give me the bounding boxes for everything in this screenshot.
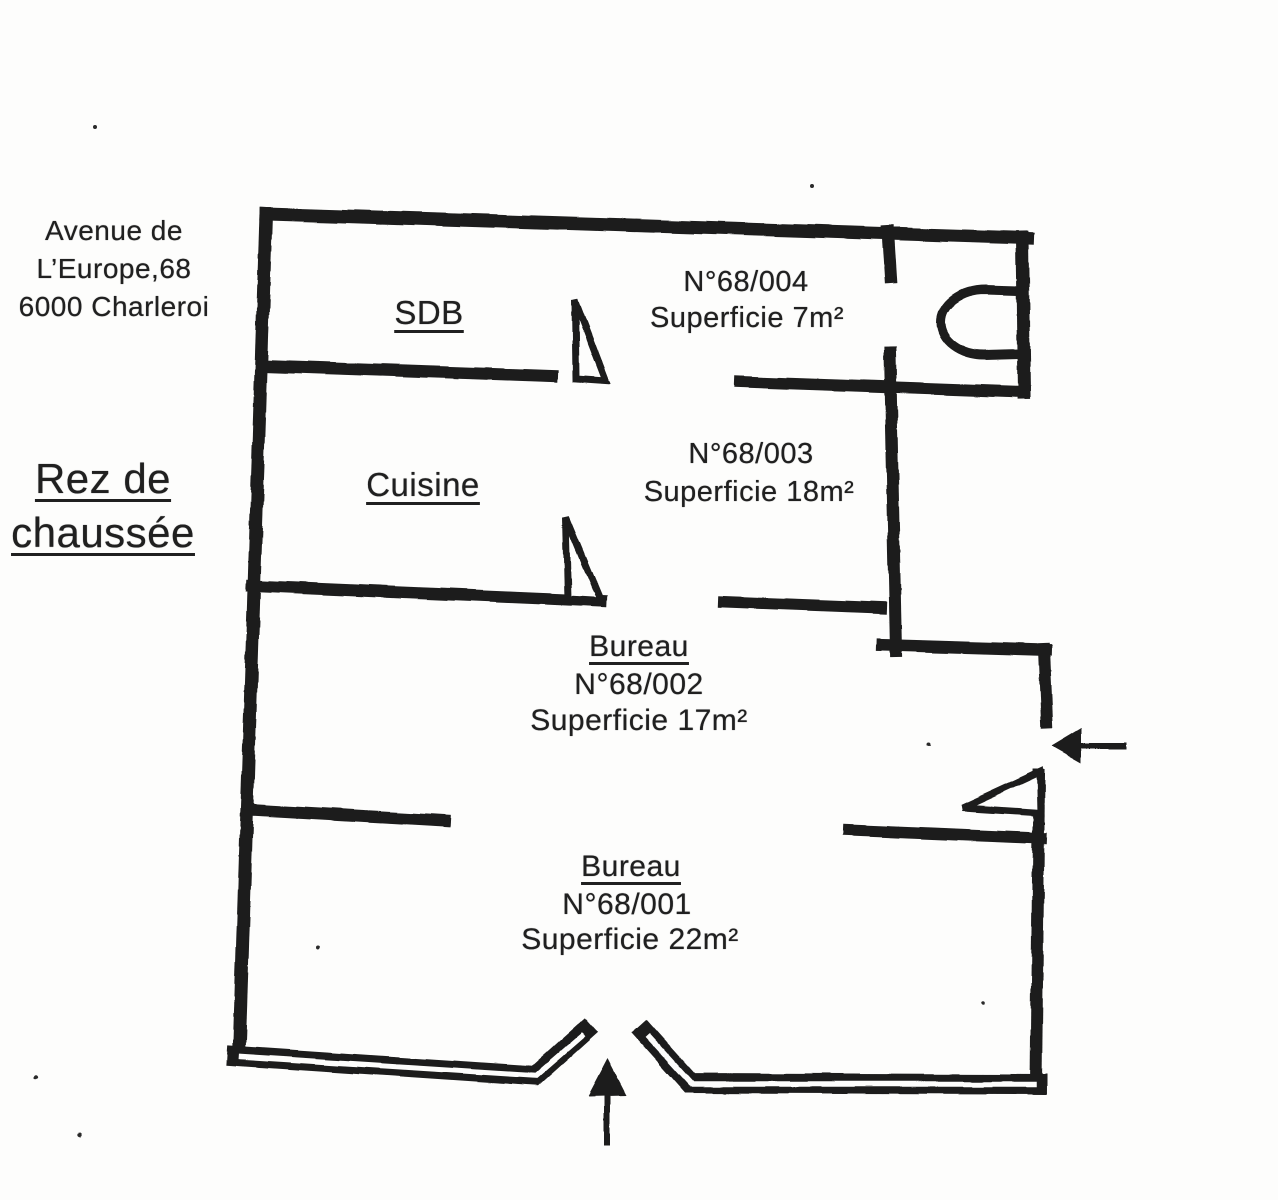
floor-plan-drawing [0, 0, 1278, 1200]
address-line-2: L’Europe,68 [19, 250, 210, 288]
room-002-name: Bureau [589, 630, 689, 664]
room-001-area: Superficie 22m² [521, 923, 739, 957]
room-002-area: Superficie 17m² [530, 704, 748, 738]
facade-right-outer [646, 1034, 1037, 1084]
sdb-door-swing-icon [575, 300, 606, 381]
address-line-3: 6000 Charleroi [19, 288, 210, 326]
room-004-area: Superficie 7m² [650, 302, 844, 335]
room-003-number: N°68/003 [688, 438, 813, 471]
wall-room003-south [724, 602, 881, 608]
wall-room002-southeast [849, 830, 1041, 838]
room-001-name: Bureau [581, 850, 681, 884]
wall-room003-east [890, 352, 896, 652]
side-entrance-door-swing-icon [962, 772, 1041, 813]
side-entrance-arrow-left-icon [1051, 728, 1123, 763]
address-block: Avenue de L’Europe,68 6000 Charleroi [19, 212, 210, 326]
floor-title: Rez de chaussée [11, 452, 195, 560]
wall-wc-stub-upper [888, 231, 891, 278]
cuisine-door-swing-icon [566, 517, 601, 601]
scanned-floorplan-page: Avenue de L’Europe,68 6000 Charleroi Rez… [0, 0, 1278, 1200]
wall-entry-step-vertical [1044, 649, 1047, 722]
wall-left [239, 214, 266, 1057]
main-entrance-arrow-up-icon [588, 1058, 627, 1143]
address-line-1: Avenue de [19, 212, 210, 250]
wall-room004-bottom [740, 382, 1024, 392]
wall-room002-room001-divider [249, 810, 445, 821]
wall-right-lower [1036, 775, 1039, 1086]
room-002-number: N°68/002 [574, 668, 703, 702]
wall-entry-step-horizontal [882, 645, 1046, 650]
floor-title-line-1: Rez de [11, 452, 195, 506]
room-004-number: N°68/004 [683, 266, 808, 299]
toilet-icon [941, 290, 1018, 355]
bottom-facade-double-wall [237, 1032, 1037, 1084]
floor-title-line-2: chaussée [11, 506, 195, 560]
room-label-sdb: SDB [394, 294, 463, 332]
room-label-cuisine: Cuisine [366, 466, 480, 504]
room-003-area: Superficie 18m² [644, 476, 855, 509]
room-001-number: N°68/001 [562, 888, 691, 922]
wall-cuisine-bottom [252, 586, 601, 601]
wall-sdb-bottom [262, 366, 552, 376]
wall-top [266, 214, 1028, 238]
wall-wc-right [1022, 237, 1024, 393]
